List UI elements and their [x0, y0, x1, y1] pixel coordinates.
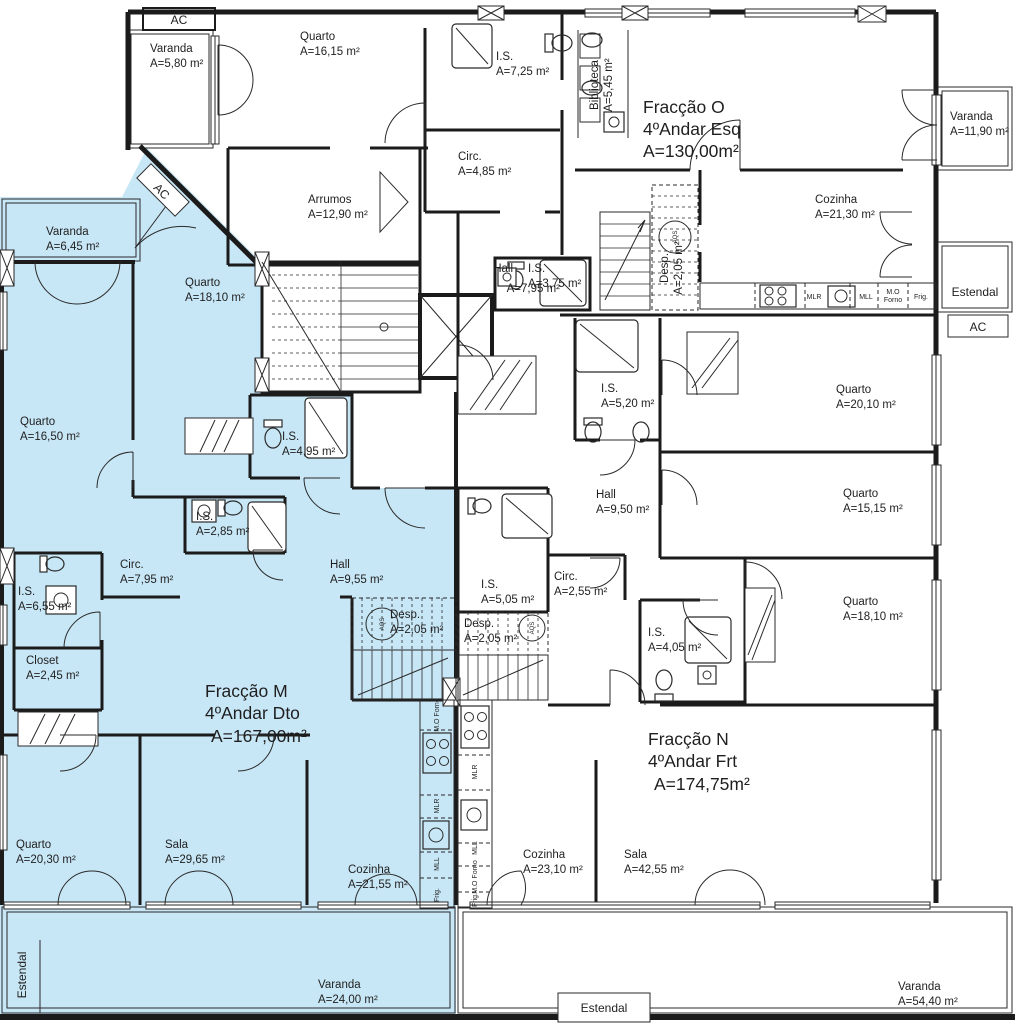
label-m-varanda2: Varanda — [318, 979, 361, 991]
label-m-is3-area: A=6,55 m² — [18, 601, 72, 613]
label-n-quarto1-area: A=20,10 m² — [836, 399, 896, 411]
label-m-frig: Frig. — [434, 888, 441, 902]
fraccao-m-title: Fracção M — [205, 681, 288, 701]
label-m-is2: I.S. — [196, 511, 213, 523]
fraccao-m-area: A=167,00m² — [211, 726, 307, 746]
label-o-is1-area: A=7,25 m² — [496, 66, 550, 78]
label-m-quarto3: Quarto — [16, 839, 51, 851]
label-n-circ: Circ. — [554, 571, 578, 583]
floor-plan-svg: Fracção M 4ºAndar Dto A=167,00m² Fracção… — [0, 0, 1015, 1024]
label-o-hall-area: A=7,95 m² — [507, 283, 561, 295]
label-n-circ-area: A=2,55 m² — [554, 586, 608, 598]
label-o-quarto1-area: A=16,15 m² — [300, 46, 360, 58]
label-m-mll: MLL — [434, 857, 441, 871]
label-o-arrumos-area: A=12,90 m² — [308, 209, 368, 221]
label-m-varanda1-area: A=6,45 m² — [46, 241, 100, 253]
label-m-closet: Closet — [26, 655, 59, 667]
label-n-hall: Hall — [596, 489, 616, 501]
label-n-varanda: Varanda — [898, 981, 941, 993]
label-o-mlr: MLR — [807, 294, 822, 301]
label-estendal-left: Estendal — [15, 952, 29, 999]
label-m-hall-area: A=9,55 m² — [330, 574, 384, 586]
fraccao-n-area: A=174,75m² — [654, 774, 750, 794]
label-n-is3: I.S. — [481, 579, 498, 591]
label-o-aqs: AQS — [673, 231, 679, 244]
fraccao-o-title: Fracção O — [643, 97, 725, 117]
label-ac-right: AC — [970, 320, 987, 334]
label-m-closet-area: A=2,45 m² — [26, 670, 80, 682]
label-m-is1-area: A=4,95 m² — [282, 446, 336, 458]
label-n-is3-area: A=5,05 m² — [481, 594, 535, 606]
label-o-is1: I.S. — [496, 51, 513, 63]
label-o-biblioteca-area: A=5,45 m² — [603, 58, 615, 112]
label-n-mll: MLL — [472, 841, 479, 855]
label-m-quarto3-area: A=20,30 m² — [16, 854, 76, 866]
label-o-circ: Circ. — [458, 151, 482, 163]
label-m-mlr: MLR — [434, 799, 441, 814]
label-n-quarto1: Quarto — [836, 384, 871, 396]
label-m-is1: I.S. — [282, 431, 299, 443]
label-n-is2-area: A=4,05 m² — [648, 642, 702, 654]
label-o-forno: Forno — [884, 297, 902, 304]
label-n-quarto2-area: A=15,15 m² — [843, 503, 903, 515]
label-m-quarto2-area: A=16,50 m² — [20, 431, 80, 443]
label-n-cozinha-area: A=23,10 m² — [523, 864, 583, 876]
label-o-varanda2-area: A=11,90 m² — [950, 126, 1009, 138]
label-o-varanda-area: A=5,80 m² — [150, 58, 204, 70]
label-n-is1-area: A=5,20 m² — [601, 398, 655, 410]
label-o-quarto1: Quarto — [300, 31, 335, 43]
label-o-is2: I.S. — [528, 263, 545, 275]
label-n-sala: Sala — [624, 849, 648, 861]
label-estendal-right: Estendal — [952, 285, 999, 299]
label-o-frig: Frig. — [914, 294, 928, 301]
label-m-quarto1: Quarto — [185, 277, 220, 289]
label-m-circ-area: A=7,95 m² — [120, 574, 174, 586]
label-o-cozinha-area: A=21,30 m² — [815, 209, 875, 221]
label-m-varanda2-area: A=24,00 m² — [318, 994, 378, 1006]
label-m-sala: Sala — [165, 839, 189, 851]
main-staircase — [262, 262, 418, 392]
label-n-quarto3-area: A=18,10 m² — [843, 611, 903, 623]
label-n-sala-area: A=42,55 m² — [624, 864, 684, 876]
label-o-biblioteca: Biblioteca — [589, 59, 601, 109]
label-m-desp: Desp. — [390, 609, 420, 621]
label-m-quarto1-area: A=18,10 m² — [185, 292, 245, 304]
label-n-desp: Desp. — [464, 618, 494, 630]
label-o-circ-area: A=4,85 m² — [458, 166, 512, 178]
label-n-hall-area: A=9,50 m² — [596, 504, 650, 516]
label-o-hall: Hall — [493, 263, 513, 275]
label-o-mll: MLL — [859, 294, 873, 301]
label-m-cozinha: Cozinha — [348, 864, 391, 876]
label-m-desp-area: A=2,05 m² — [390, 624, 444, 636]
label-m-is3: I.S. — [18, 586, 35, 598]
fraccao-o-floor: 4ºAndar Esq — [643, 119, 741, 139]
label-o-cozinha: Cozinha — [815, 194, 858, 206]
label-m-sala-area: A=29,65 m² — [165, 854, 225, 866]
fraccao-n-title: Fracção N — [648, 729, 729, 749]
fraccao-m-floor: 4ºAndar Dto — [205, 703, 300, 723]
label-o-arrumos: Arrumos — [308, 194, 352, 206]
label-o-desp: Desp. — [659, 253, 671, 283]
label-o-mo: M.O — [886, 289, 900, 296]
label-n-is2: I.S. — [648, 627, 665, 639]
label-n-quarto2: Quarto — [843, 488, 878, 500]
label-n-varanda-area: A=54,40 m² — [898, 996, 958, 1008]
label-n-mo-forno: M.O Forno — [472, 860, 479, 894]
floor-plan-canvas: Fracção M 4ºAndar Dto A=167,00m² Fracção… — [0, 0, 1015, 1024]
label-m-is2-area: A=2,85 m² — [196, 526, 250, 538]
label-n-quarto3: Quarto — [843, 596, 878, 608]
label-m-hall: Hall — [330, 559, 350, 571]
fraccao-n-floor: 4ºAndar Frt — [648, 751, 737, 771]
label-ac-top: AC — [171, 13, 188, 27]
label-estendal-bottom: Estendal — [581, 1001, 628, 1015]
label-n-frig: Frig. — [472, 893, 479, 907]
label-m-aqs: AQS — [380, 618, 386, 631]
label-o-varanda2: Varanda — [950, 111, 993, 123]
label-n-desp-area: A=2,05 m² — [464, 633, 518, 645]
label-n-mlr: MLR — [472, 765, 479, 780]
label-n-cozinha: Cozinha — [523, 849, 566, 861]
label-m-mo-forno: M.O Forno — [434, 698, 441, 732]
label-m-varanda1: Varanda — [46, 226, 89, 238]
label-n-aqs: AQS — [530, 622, 536, 635]
label-m-quarto2: Quarto — [20, 416, 55, 428]
label-o-desp-area: A=2,05 m² — [673, 241, 685, 295]
label-n-is1: I.S. — [601, 383, 618, 395]
label-o-varanda: Varanda — [150, 43, 193, 55]
fraccao-o-area: A=130,00m² — [643, 141, 739, 161]
label-m-cozinha-area: A=21,55 m² — [348, 879, 408, 891]
label-m-circ: Circ. — [120, 559, 144, 571]
